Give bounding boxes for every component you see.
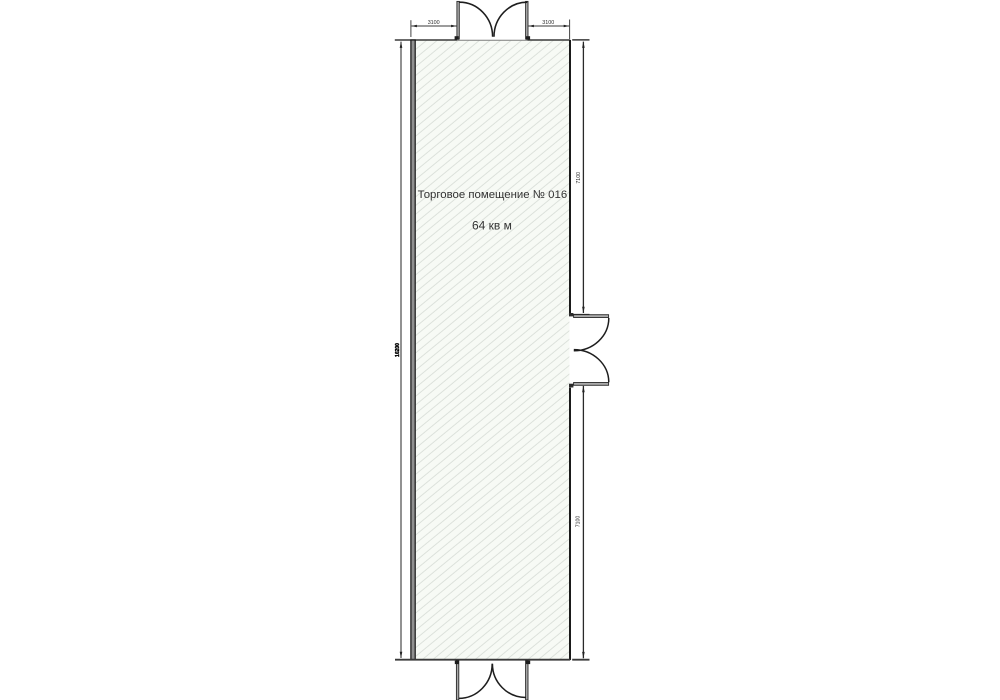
svg-text:7100: 7100	[576, 516, 582, 528]
svg-text:3100: 3100	[542, 20, 554, 26]
svg-text:7100: 7100	[576, 172, 582, 184]
svg-text:3100: 3100	[428, 20, 440, 26]
svg-text:Торговое помещение № 016: Торговое помещение № 016	[418, 189, 568, 201]
svg-text:16200: 16200	[395, 343, 401, 357]
svg-text:64 кв м: 64 кв м	[472, 219, 512, 233]
